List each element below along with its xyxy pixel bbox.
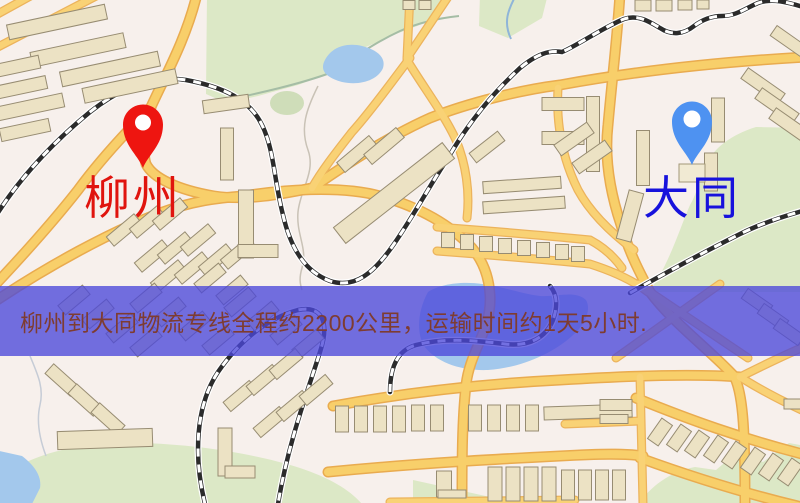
- route-info-text: 柳州到大同物流专线全程约2200公里，运输时间约1天5小时.: [0, 304, 647, 338]
- map-canvas[interactable]: [0, 0, 800, 503]
- origin-city-label: 柳州: [84, 176, 182, 222]
- route-info-banner: 柳州到大同物流专线全程约2200公里，运输时间约1天5小时.: [0, 286, 800, 356]
- destination-city-label: 大同: [643, 176, 741, 222]
- map-screenshot: 柳州 大同 柳州到大同物流专线全程约2200公里，运输时间约1天5小时.: [0, 0, 800, 503]
